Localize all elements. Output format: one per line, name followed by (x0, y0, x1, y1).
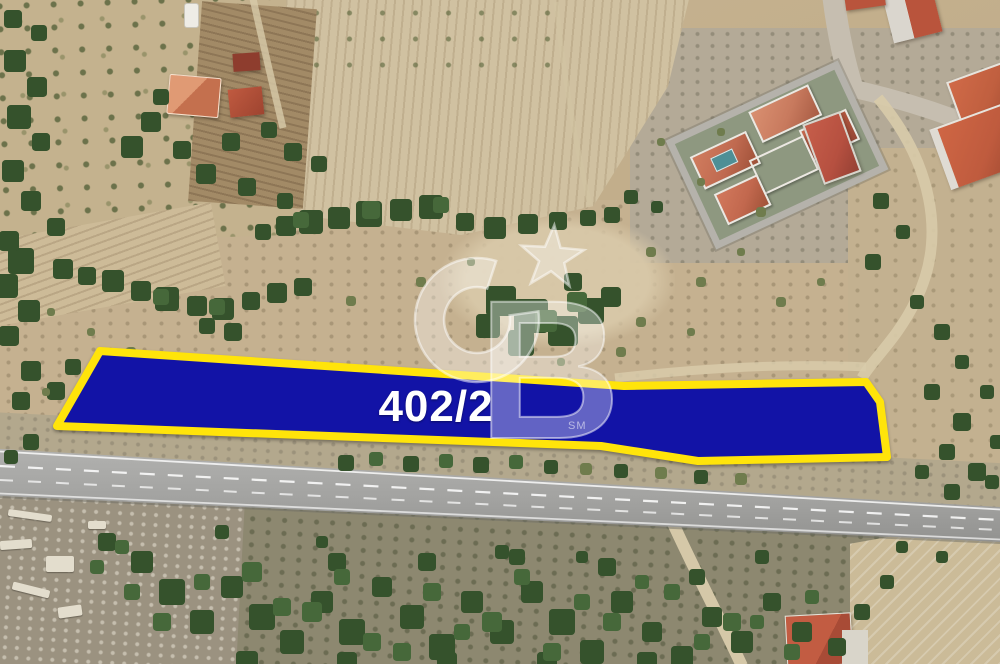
aerial-photo: 402/2 B SM (0, 0, 1000, 664)
service-mark-label: SM (568, 420, 587, 432)
letter-b: B (478, 259, 621, 480)
brand-watermark: B SM (0, 0, 1000, 664)
